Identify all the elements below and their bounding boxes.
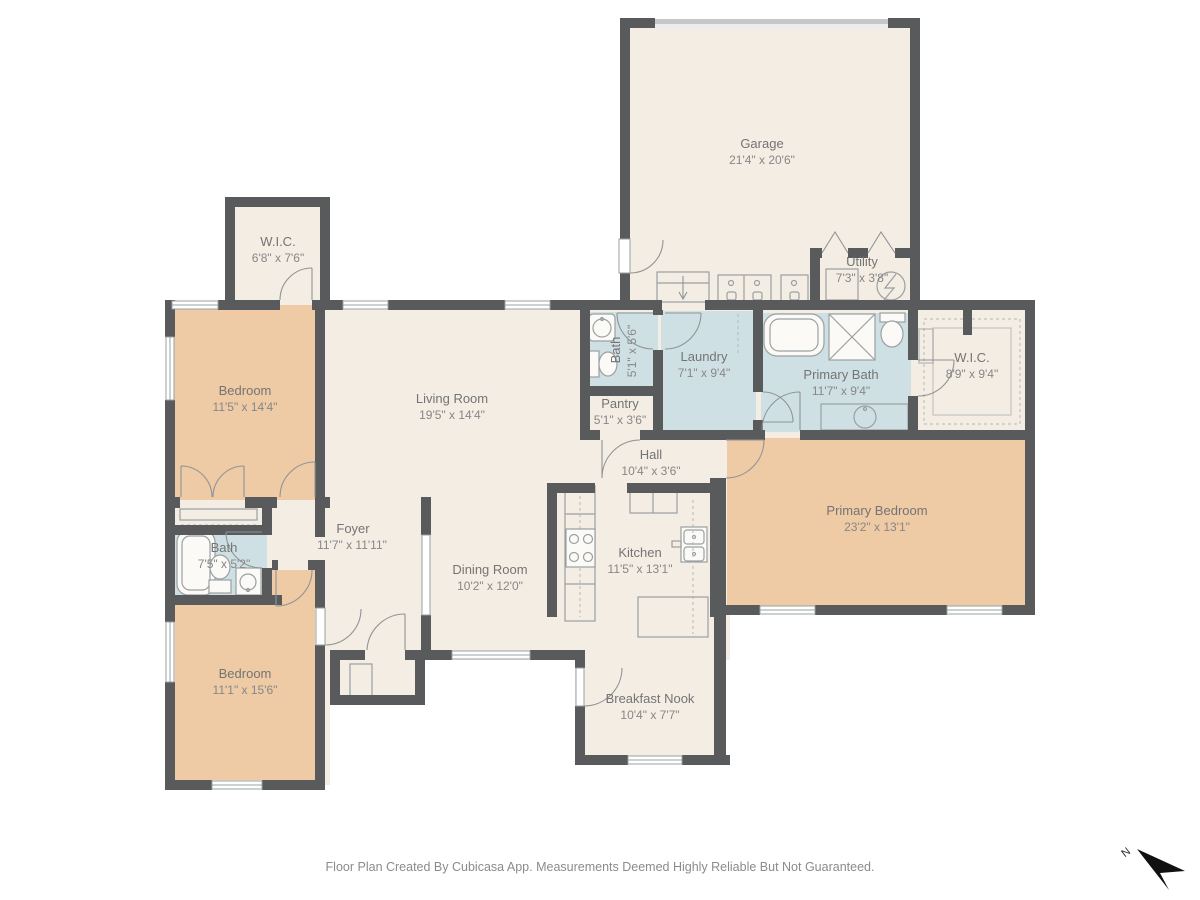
room-label: Kitchen	[618, 545, 661, 560]
room-label: Bath	[608, 337, 623, 364]
front-bath-sink	[236, 568, 261, 595]
window	[628, 756, 682, 764]
garage-door	[655, 19, 888, 24]
room-label: Primary Bedroom	[826, 503, 927, 518]
window	[212, 781, 262, 789]
window	[947, 606, 1002, 614]
room-dims: 7'1" x 9'4"	[678, 366, 730, 380]
room-dims: 5'1" x 5'6"	[625, 325, 639, 377]
room-dims: 11'5" x 13'1"	[608, 562, 673, 576]
cased-opening	[422, 535, 430, 615]
north-label: N	[1119, 845, 1133, 859]
room-dims: 21'4" x 20'6"	[729, 153, 795, 167]
room-dims: 8'9" x 9'4"	[946, 367, 998, 381]
room-label: Utility	[846, 254, 878, 269]
room-label: Living Room	[416, 391, 488, 406]
window	[505, 301, 550, 309]
room-dims: 19'5" x 14'4"	[419, 408, 485, 422]
room-label: Pantry	[601, 396, 639, 411]
room-label: Breakfast Nook	[606, 691, 695, 706]
window	[760, 606, 815, 614]
footer-disclaimer: Floor Plan Created By Cubicasa App. Meas…	[0, 860, 1200, 874]
primary-bathtub	[764, 314, 824, 356]
room-dims: 23'2" x 13'1"	[844, 520, 910, 534]
room-dims: 6'8" x 7'6"	[252, 251, 304, 265]
room-dims: 5'1" x 3'6"	[594, 413, 646, 427]
primary-shower	[829, 314, 875, 360]
room-dims: 10'4" x 7'7"	[620, 708, 679, 722]
room-dims: 11'5" x 14'4"	[213, 400, 278, 414]
room-label: Laundry	[681, 349, 728, 364]
room-label: W.I.C.	[260, 234, 295, 249]
kitchen-stove	[566, 529, 595, 567]
room-dims: 10'2" x 12'0"	[457, 579, 523, 593]
room-label: Bedroom	[219, 666, 272, 681]
room-dims: 11'7" x 11'11"	[317, 538, 387, 552]
floor-plan-canvas: Garage 21'4" x 20'6" W.I.C. 6'8" x 7'6" …	[0, 0, 1200, 900]
window	[172, 301, 218, 309]
window	[166, 337, 174, 400]
room-label: Bedroom	[219, 383, 272, 398]
room-label: Dining Room	[452, 562, 527, 577]
room-dims: 10'4" x 3'6"	[621, 464, 680, 478]
garage-door-panel	[655, 24, 888, 29]
floor-plan: Garage 21'4" x 20'6" W.I.C. 6'8" x 7'6" …	[0, 0, 1200, 900]
room-dims: 7'3" x 3'8"	[836, 271, 888, 285]
room-label: Bath	[211, 540, 238, 555]
room-label: Hall	[640, 447, 663, 462]
room-dims: 11'1" x 15'6"	[213, 683, 278, 697]
room-label: Foyer	[336, 521, 370, 536]
room-dims: 7'5" x 5'2"	[198, 557, 250, 571]
entry-closet-floor	[335, 655, 423, 700]
window	[343, 301, 388, 309]
window	[166, 622, 174, 682]
primary-toilet	[880, 313, 905, 347]
room-label: W.I.C.	[954, 350, 989, 365]
window	[452, 651, 530, 659]
room-label: Garage	[740, 136, 783, 151]
room-dims: 11'7" x 9'4"	[812, 384, 870, 398]
room-label: Primary Bath	[803, 367, 878, 382]
